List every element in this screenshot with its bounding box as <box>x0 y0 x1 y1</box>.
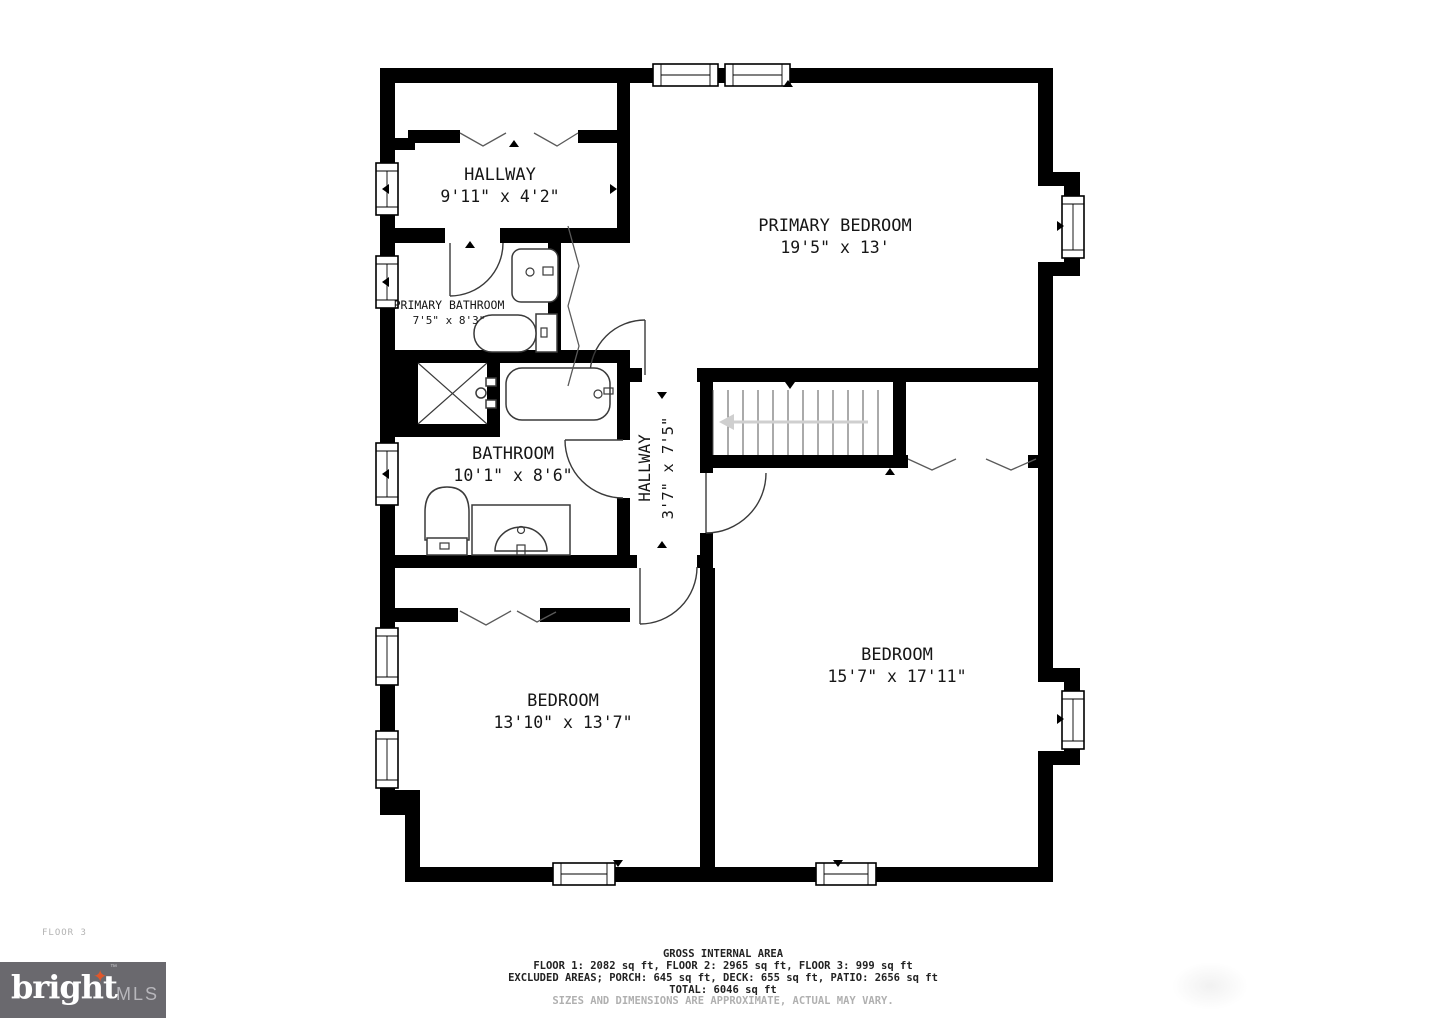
room-dims-hallway-center: 3'7" x 7'5" <box>659 417 677 520</box>
brightmls-logo: bright ✦ ™ MLS <box>0 962 166 1018</box>
area-summary: GROSS INTERNAL AREA FLOOR 1: 2082 sq ft,… <box>508 948 938 1007</box>
window <box>376 628 398 685</box>
door-bathroom <box>565 440 623 498</box>
window <box>376 731 398 788</box>
disclaimer-line: SIZES AND DIMENSIONS ARE APPROXIMATE, AC… <box>552 995 893 1007</box>
room-dims-primary-bedroom: 19'5" x 13' <box>780 238 889 257</box>
window <box>816 863 876 885</box>
door-bedroom-left <box>640 567 697 624</box>
room-label-primary-bedroom: PRIMARY BEDROOM <box>758 216 912 236</box>
room-labels: HALLWAY 9'11" x 4'2" PRIMARY BEDROOM 19'… <box>394 165 967 732</box>
toilet-icon <box>425 487 469 555</box>
room-label-primary-bathroom: PRIMARY BATHROOM <box>394 298 505 312</box>
window <box>553 863 615 885</box>
floorplan-drawing: HALLWAY 9'11" x 4'2" PRIMARY BEDROOM 19'… <box>0 0 1440 1018</box>
gross-area-title: GROSS INTERNAL AREA <box>663 948 784 960</box>
logo-trademark: ™ <box>110 964 117 971</box>
room-dims-bathroom: 10'1" x 8'6" <box>453 466 572 485</box>
room-label-bedroom-left: BEDROOM <box>527 691 599 711</box>
logo-star-icon: ✦ <box>93 967 107 987</box>
floor-number-label: FLOOR 3 <box>42 928 87 938</box>
door-bedroom-right <box>706 473 766 533</box>
fixtures <box>418 249 613 555</box>
room-dims-hallway-top: 9'11" x 4'2" <box>440 187 559 206</box>
floorplan-page: HALLWAY 9'11" x 4'2" PRIMARY BEDROOM 19'… <box>0 0 1440 1018</box>
room-label-bathroom: BATHROOM <box>472 444 554 464</box>
staircase <box>713 390 878 455</box>
toilet-icon <box>474 314 557 352</box>
floor-areas-line: FLOOR 1: 2082 sq ft, FLOOR 2: 2965 sq ft… <box>533 960 912 972</box>
logo-suffix-text: MLS <box>116 984 159 1005</box>
window <box>725 64 790 86</box>
shower-icon <box>418 363 496 424</box>
room-dims-primary-bathroom: 7'5" x 8'3" <box>413 314 486 327</box>
window <box>653 64 718 86</box>
photographer-watermark <box>1172 962 1248 1010</box>
bathtub-icon <box>506 368 613 420</box>
vanity-sink-icon <box>472 505 570 555</box>
stair-arrowhead-icon <box>719 414 734 430</box>
room-label-hallway-center: HALLWAY <box>635 434 654 502</box>
room-dims-bedroom-right: 15'7" x 17'11" <box>827 667 966 686</box>
room-dims-bedroom-left: 13'10" x 13'7" <box>493 713 632 732</box>
door-primary-bathroom <box>450 243 503 296</box>
window <box>1062 691 1084 749</box>
window <box>1062 196 1084 258</box>
vanity-sink-icon <box>512 249 558 302</box>
room-label-bedroom-right: BEDROOM <box>861 645 933 665</box>
excluded-areas-line: EXCLUDED AREAS; PORCH: 645 sq ft, DECK: … <box>508 972 938 984</box>
room-label-hallway-top: HALLWAY <box>464 165 536 185</box>
